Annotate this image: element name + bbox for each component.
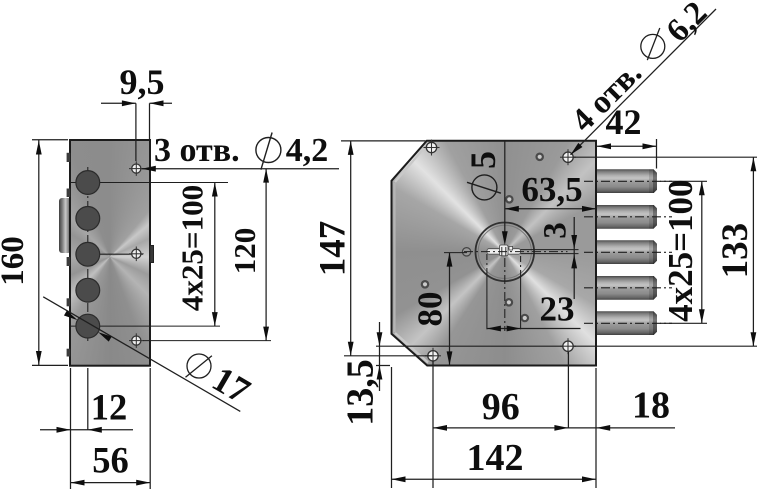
svg-text:18: 18 xyxy=(632,385,670,427)
svg-text:17: 17 xyxy=(206,358,257,411)
svg-text:13,5: 13,5 xyxy=(340,359,382,426)
svg-text:142: 142 xyxy=(467,437,524,479)
svg-text:5: 5 xyxy=(463,151,503,169)
svg-text:3 отв.: 3 отв. xyxy=(154,132,240,169)
svg-text:4,2: 4,2 xyxy=(286,132,329,169)
svg-text:4x25=100: 4x25=100 xyxy=(661,179,700,321)
svg-text:147: 147 xyxy=(313,221,354,277)
svg-text:3: 3 xyxy=(538,222,574,239)
svg-text:9,5: 9,5 xyxy=(120,62,165,102)
svg-text:80: 80 xyxy=(411,292,450,327)
svg-text:23: 23 xyxy=(540,290,575,329)
svg-text:160: 160 xyxy=(0,236,31,286)
svg-text:96: 96 xyxy=(482,386,520,428)
svg-text:12: 12 xyxy=(91,387,128,428)
svg-text:6,2: 6,2 xyxy=(660,0,715,49)
svg-text:56: 56 xyxy=(92,440,129,481)
svg-text:120: 120 xyxy=(227,228,262,275)
svg-text:133: 133 xyxy=(715,223,756,279)
svg-text:63,5: 63,5 xyxy=(521,170,582,209)
svg-text:4x25=100: 4x25=100 xyxy=(175,185,210,311)
